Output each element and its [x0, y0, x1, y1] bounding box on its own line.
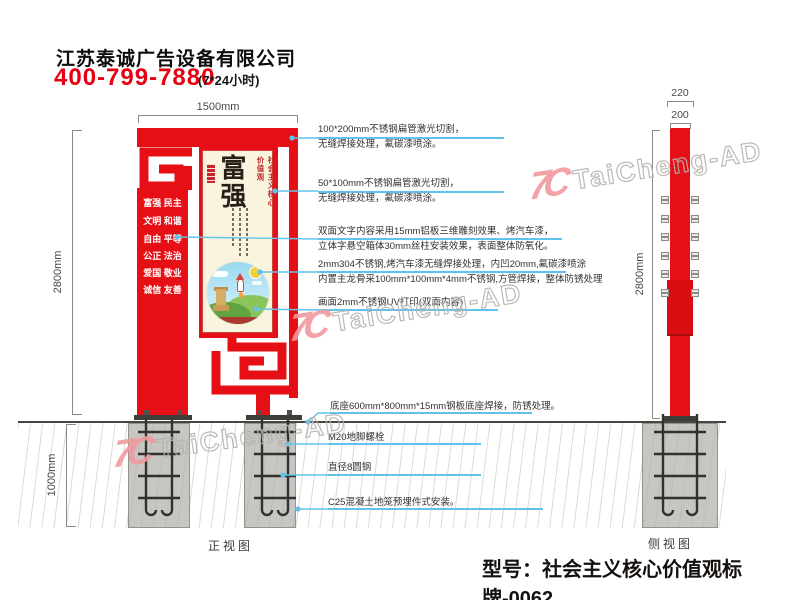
phone-number: 400-799-7880: [54, 64, 215, 92]
annotation: C25混凝土地笼预埋件式安装。: [328, 496, 459, 511]
side-view-label: 侧视图: [648, 535, 693, 552]
anchor-bolt: [177, 410, 182, 415]
dim-tick: [690, 123, 691, 129]
dim-label-2800-side: 2800mm: [634, 242, 646, 306]
poster-illustration: [206, 261, 270, 325]
dim-line-200: [670, 123, 691, 124]
rocket-body: [237, 279, 244, 292]
vertical-text-lines: [246, 208, 248, 256]
value-row: 公正 法治: [137, 249, 188, 262]
anchor-bolt: [287, 410, 292, 415]
annotation-line: 内置主龙骨采100mm*100mm*4mm不锈钢,方管焊接，整体防锈处理: [318, 273, 603, 288]
poster-headline: 富强: [213, 154, 250, 214]
value-row: 诚信 友善: [137, 283, 188, 296]
dim-tick: [667, 101, 668, 107]
annotation-line: 底座600mm*800mm*15mm钢板底座焊接，防锈处理。: [330, 400, 560, 415]
rebar-cage-left: [134, 414, 184, 524]
mount-clip: [661, 196, 669, 204]
mount-clip: [661, 233, 669, 241]
annotation: 直径8圆钢: [328, 461, 371, 476]
value-row: 自由 平等: [137, 232, 188, 245]
annotation-line: C25混凝土地笼预埋件式安装。: [328, 496, 459, 511]
dim-tick: [138, 115, 139, 123]
service-hours: (7*24小时): [198, 70, 259, 89]
annotation-line: 双面文字内容采用15mm铝板三维雕刻效果、烤汽车漆，: [318, 225, 553, 240]
model-number: 型号：社会主义核心价值观标牌-0062: [482, 553, 800, 600]
annotation-line: M20地脚螺栓: [328, 431, 384, 446]
vertical-text-lines: [239, 208, 241, 256]
annotation: 2mm304不锈钢,烤汽车漆无缝焊接处理，内凹20mm,氟碳漆喷涂 内置主龙骨采…: [318, 258, 603, 287]
base-plate-right: [246, 415, 302, 420]
side-pole: [670, 128, 690, 421]
annotation-line: 100*200mm不锈钢扁管激光切割，: [318, 123, 464, 138]
rocket-flame: [239, 292, 243, 298]
spec-sheet-page: 江苏泰诚广告设备有限公司 400-799-7880 (7*24小时): [0, 0, 800, 600]
poster-inner: 富强 社会主义核心价值观: [202, 150, 273, 333]
dim-tick: [652, 418, 660, 419]
dim-tick: [72, 414, 82, 415]
dim-label-1000: 1000mm: [46, 443, 58, 507]
rebar-cage-side: [650, 414, 710, 524]
annotation-line: 画面2mm不锈钢UV打印(双面内容): [318, 296, 463, 311]
mount-clip: [661, 289, 669, 297]
dim-label-2800-front: 2800mm: [52, 240, 64, 304]
dim-line-1500: [138, 115, 298, 116]
sign-top-bar: [137, 128, 298, 147]
annotation-line: 50*100mm不锈钢扁管激光切割，: [318, 177, 459, 192]
mount-clip: [691, 270, 699, 278]
watermark-text: TaiCheng-AD: [571, 137, 764, 194]
value-row: 爱国 敬业: [137, 266, 188, 279]
rebar-cage-right: [250, 414, 300, 524]
village-band: [207, 317, 270, 325]
annotation: 底座600mm*800mm*15mm钢板底座焊接，防锈处理。: [330, 400, 560, 415]
annotation: 50*100mm不锈钢扁管激光切割， 无缝焊接处理，氟碳漆喷涂。: [318, 177, 459, 206]
dim-tick: [670, 123, 671, 129]
dim-line-2800-front: [72, 130, 73, 415]
ground-line: [18, 421, 726, 423]
mount-clip: [661, 215, 669, 223]
front-view-label: 正视图: [208, 537, 253, 554]
dim-label-200: 200: [655, 109, 705, 121]
mount-clip: [691, 289, 699, 297]
poster-side-title: 社会主义核心价值观: [255, 156, 277, 214]
cloud-icon: [252, 281, 262, 285]
dim-tick: [66, 526, 76, 527]
tower-base: [213, 305, 229, 311]
taicheng-logo-icon: 7C: [528, 163, 566, 207]
annotation-line: 无缝焊接处理，氟碳漆喷涂。: [318, 192, 459, 207]
anchor-bolt: [257, 410, 262, 415]
greek-fret-bottom: [212, 337, 298, 400]
vertical-text-lines: [232, 208, 234, 248]
base-plate-left: [134, 415, 192, 420]
annotation-line: 无缝焊接处理，氟碳漆喷涂。: [318, 138, 464, 153]
mount-clip: [691, 233, 699, 241]
mount-clip: [661, 252, 669, 260]
annotation: 画面2mm不锈钢UV打印(双面内容): [318, 296, 463, 311]
watermark: 7C TaiCheng-AD: [526, 132, 765, 206]
dim-line-2800-side: [652, 130, 653, 419]
dim-tick: [652, 130, 660, 131]
mount-clip: [691, 196, 699, 204]
side-pole-box: [667, 280, 693, 336]
dim-tick: [693, 101, 694, 107]
mount-clip: [691, 215, 699, 223]
mount-clip: [691, 252, 699, 260]
base-plate-side: [664, 416, 696, 421]
dim-tick: [297, 115, 298, 123]
annotation: M20地脚螺栓: [328, 431, 384, 446]
dim-line-1000: [66, 424, 67, 527]
dim-label-1500: 1500mm: [178, 101, 258, 113]
annotation: 100*200mm不锈钢扁管激光切割， 无缝焊接处理，氟碳漆喷涂。: [318, 123, 464, 152]
side-pole-seam: [667, 334, 693, 336]
value-row: 富强 民主: [137, 196, 188, 209]
dim-tick: [66, 424, 76, 425]
dim-line-220: [667, 101, 694, 102]
dim-label-220: 220: [655, 87, 705, 99]
cloud-icon: [212, 271, 228, 277]
annotation-line: 直径8圆钢: [328, 461, 371, 476]
value-column: 富强 民主 文明 和谐 自由 平等 公正 法治 爱国 敬业 诚信 友善: [137, 188, 188, 417]
sun-icon: [249, 266, 262, 279]
greek-fret-top: [137, 147, 197, 192]
value-row: 文明 和谐: [137, 214, 188, 227]
annotation: 双面文字内容采用15mm铝板三维雕刻效果、烤汽车漆， 立体字悬空箱体30mm丝柱…: [318, 225, 553, 254]
dim-tick: [72, 130, 82, 131]
annotation-line: 2mm304不锈钢,烤汽车漆无缝焊接处理，内凹20mm,氟碳漆喷涂: [318, 258, 603, 273]
mount-clip: [661, 270, 669, 278]
poster-panel: 富强 社会主义核心价值观: [199, 147, 278, 338]
anchor-bolt: [144, 410, 149, 415]
annotation-line: 立体字悬空箱体30mm丝柱安装效果，表面整体防氧化。: [318, 240, 553, 255]
